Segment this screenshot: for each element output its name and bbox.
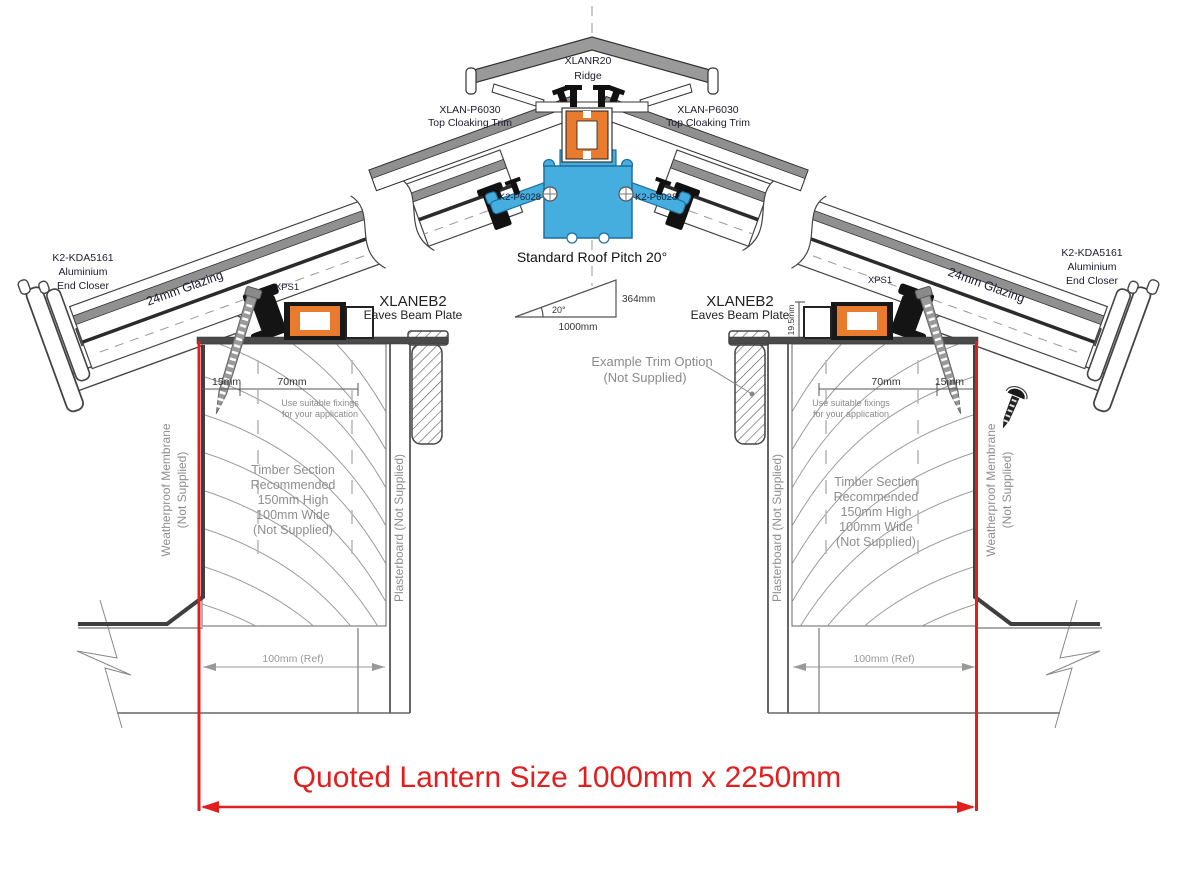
svg-text:100mm Wide: 100mm Wide — [256, 508, 330, 522]
closer-left-l2: Aluminium — [58, 266, 107, 278]
svg-text:(Not Supplied): (Not Supplied) — [175, 452, 189, 529]
svg-text:Weatherproof Membrane: Weatherproof Membrane — [159, 423, 173, 557]
svg-text:Weatherproof Membrane: Weatherproof Membrane — [984, 423, 998, 557]
xps-left-label: XPS1 — [275, 282, 299, 293]
closer-right-l3: End Closer — [1066, 275, 1118, 287]
dim-arrow-left — [201, 801, 219, 813]
svg-text:Recommended: Recommended — [251, 478, 336, 492]
cloaking-right-name: Top Cloaking Trim — [666, 117, 750, 129]
cloaking-right-code: XLAN-P6030 — [677, 104, 738, 116]
plate-right-label: K2-P6028 — [635, 192, 677, 203]
svg-text:Timber Section: Timber Section — [834, 475, 918, 489]
svg-text:150mm High: 150mm High — [841, 505, 912, 519]
dim-arrow-right — [957, 801, 975, 813]
closer-right-l1: K2-KDA5161 — [1061, 247, 1122, 259]
trim-block-left — [408, 331, 448, 444]
timber-note-left: Timber Section Recommended 150mm High 10… — [251, 463, 336, 537]
trim-block-right — [729, 331, 769, 444]
pitch-title: Standard Roof Pitch 20° — [517, 249, 667, 265]
break-mark-left — [77, 600, 131, 728]
svg-text:(Not Supplied): (Not Supplied) — [253, 523, 333, 537]
svg-text:100mm Wide: 100mm Wide — [839, 520, 913, 534]
ridge-name-label: Ridge — [574, 70, 602, 82]
lantern-section-drawing: XLANR20 Ridge XLAN-P6030 Top Cloaking Tr… — [0, 0, 1184, 872]
closer-left-l3: End Closer — [57, 280, 109, 292]
cloaking-left-name: Top Cloaking Trim — [428, 117, 512, 129]
quoted-size-label: Quoted Lantern Size 1000mm x 2250mm — [293, 761, 842, 794]
trim-option-l1: Example Trim Option — [591, 354, 712, 369]
fixings-note-left-1: Use suitable fixings — [281, 398, 359, 408]
ridge-core — [562, 108, 612, 162]
trim-option-l2: (Not Supplied) — [603, 370, 686, 385]
timber-note-right: Timber Section Recommended 150mm High 10… — [834, 475, 919, 549]
dim-15mm-left: 15mm — [212, 376, 241, 388]
drawing-canvas: XLANR20 Ridge XLAN-P6030 Top Cloaking Tr… — [0, 0, 1184, 872]
dim-70mm-right: 70mm — [871, 376, 900, 388]
cloaking-left-code: XLAN-P6030 — [439, 104, 500, 116]
closer-left-l1: K2-KDA5161 — [52, 252, 113, 264]
eaves-left-name: Eaves Beam Plate — [364, 308, 463, 322]
fixings-note-right-1: Use suitable fixings — [812, 398, 890, 408]
loose-screw-icon — [993, 384, 1030, 433]
fixings-note-right-2: for your application — [813, 409, 889, 419]
dim-15mm-right: 15mm — [935, 376, 964, 388]
plasterboard-label-right: Plasterboard (Not Supplied) — [770, 454, 784, 602]
eaves-right-height: 19.5mm — [786, 305, 796, 336]
svg-text:150mm High: 150mm High — [258, 493, 329, 507]
svg-text:Recommended: Recommended — [834, 490, 919, 504]
eaves-right-name: Eaves Beam Plate — [691, 308, 790, 322]
membrane-label-left: Weatherproof Membrane (Not Supplied) — [159, 423, 189, 557]
pitch-run: 1000mm — [559, 322, 598, 333]
svg-text:(Not Supplied): (Not Supplied) — [1000, 452, 1014, 529]
pitch-angle: 20° — [552, 305, 566, 315]
membrane-label-right: Weatherproof Membrane (Not Supplied) — [984, 423, 1014, 557]
dim-70mm-left: 70mm — [277, 376, 306, 388]
pitch-rise: 364mm — [622, 294, 655, 305]
svg-text:(Not Supplied): (Not Supplied) — [836, 535, 916, 549]
plasterboard-label-left: Plasterboard (Not Supplied) — [392, 454, 406, 602]
closer-right-l2: Aluminium — [1067, 261, 1116, 273]
break-mark-right — [1046, 600, 1100, 728]
plate-left-label: K2-P6028 — [499, 192, 541, 203]
ref-dim-right-label: 100mm (Ref) — [853, 653, 914, 665]
ref-dim-left-label: 100mm (Ref) — [262, 653, 323, 665]
ridge-code-label: XLANR20 — [565, 55, 612, 67]
fixings-note-left-2: for your application — [282, 409, 358, 419]
svg-text:Timber Section: Timber Section — [251, 463, 335, 477]
xps-right-label: XPS1 — [868, 275, 892, 286]
